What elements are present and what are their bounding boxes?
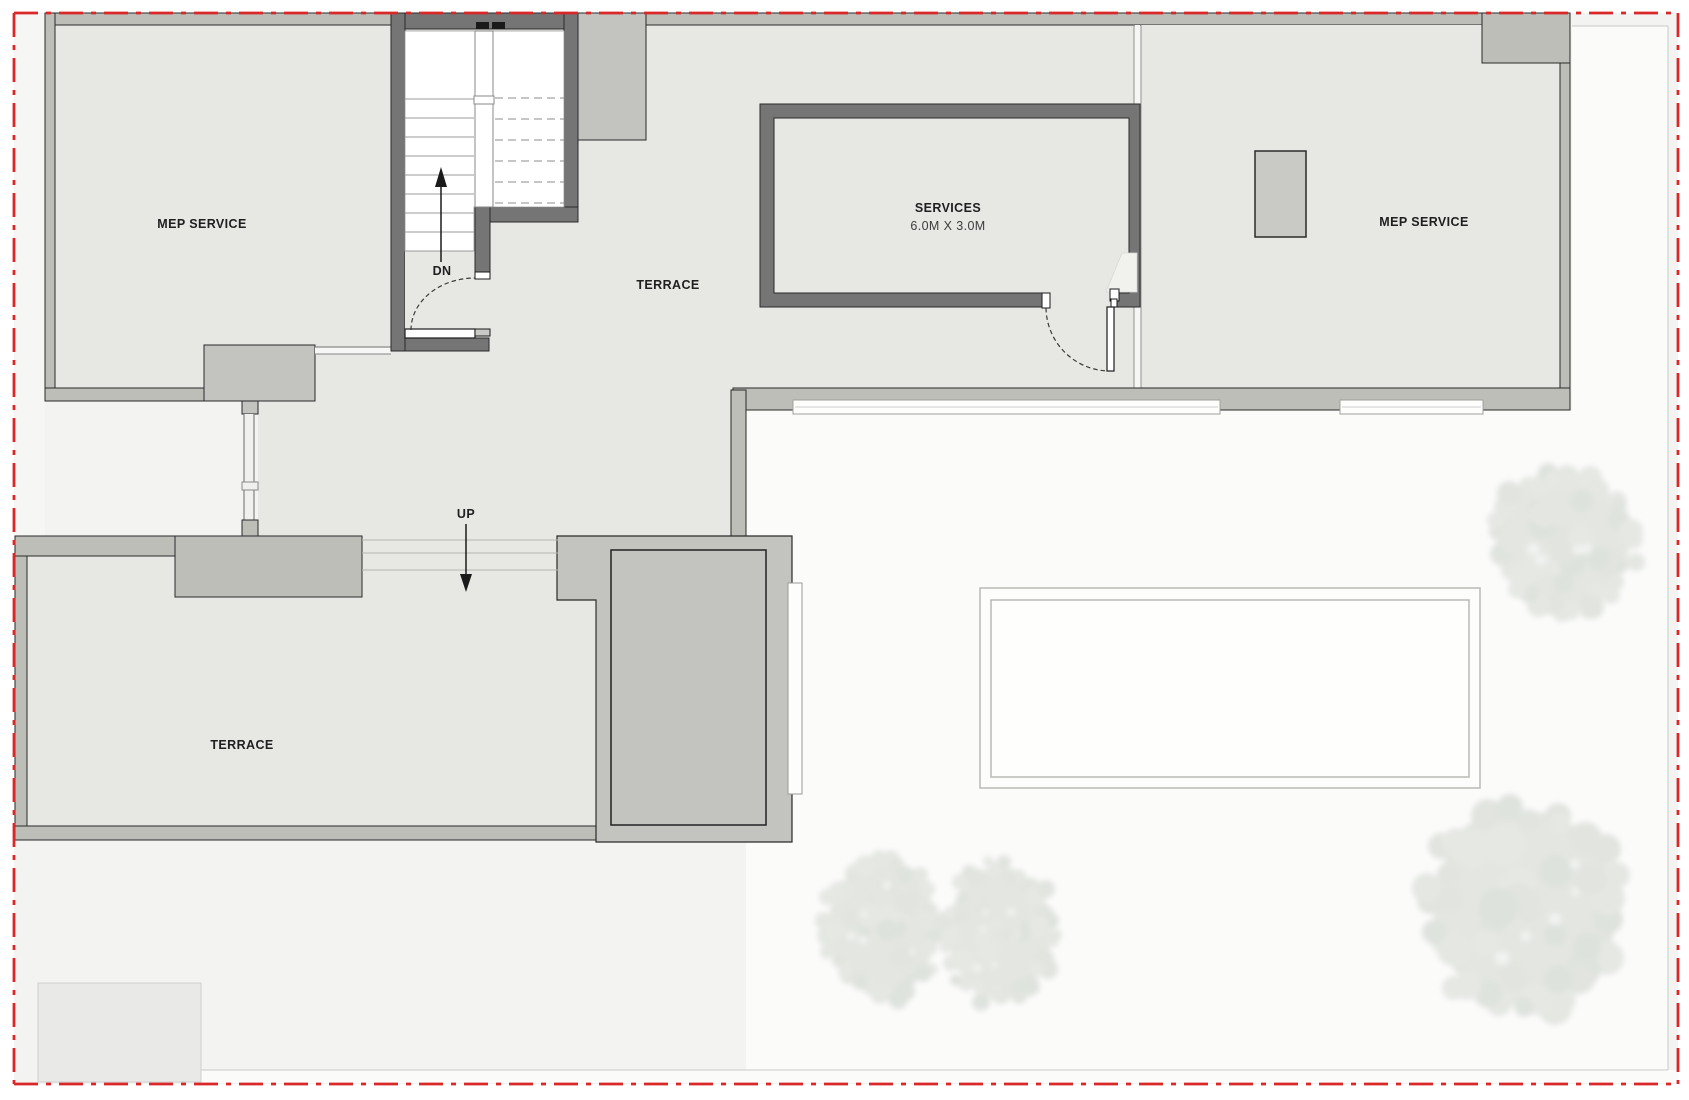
svg-text:6.0M X 3.0M: 6.0M X 3.0M <box>910 219 985 233</box>
svg-text:MEP SERVICE: MEP SERVICE <box>1379 215 1468 229</box>
svg-text:UP: UP <box>457 507 475 521</box>
svg-text:SERVICES: SERVICES <box>915 201 981 215</box>
svg-text:TERRACE: TERRACE <box>210 738 273 752</box>
svg-text:TERRACE: TERRACE <box>636 278 699 292</box>
svg-text:MEP SERVICE: MEP SERVICE <box>157 217 246 231</box>
svg-text:DN: DN <box>433 264 452 278</box>
